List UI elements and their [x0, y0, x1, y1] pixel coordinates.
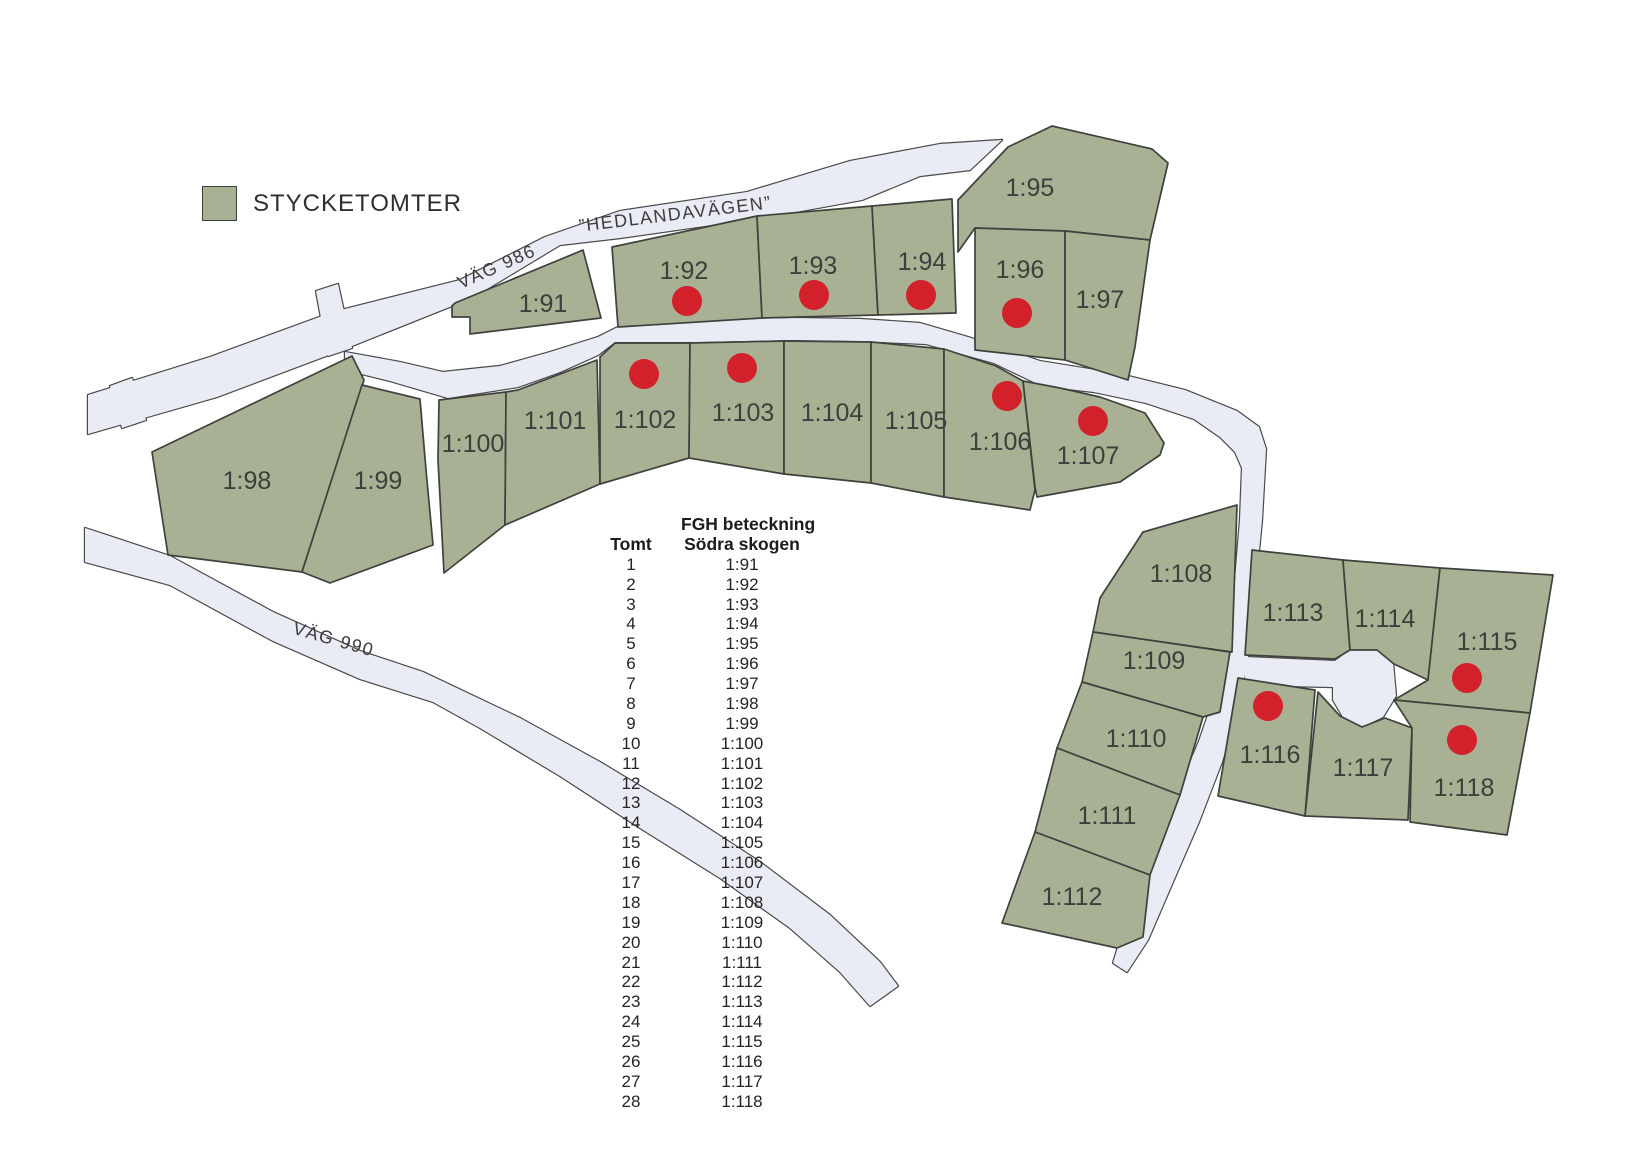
table-cell-tomt: 23	[581, 992, 681, 1012]
plot-label-1-97: 1:97	[1076, 286, 1125, 314]
table-cell-beteckning: 1:96	[681, 654, 803, 674]
table-subtitle: Södra skogen	[681, 535, 803, 555]
table-row: 71:97	[581, 674, 811, 694]
plot-label-1-118: 1:118	[1434, 774, 1495, 802]
table-cell-beteckning: 1:118	[681, 1092, 803, 1112]
table-cell-beteckning: 1:107	[681, 873, 803, 893]
legend-plot-swatch	[202, 186, 237, 221]
table-row: 191:109	[581, 913, 811, 933]
table-header-row: Tomt Södra skogen	[581, 535, 811, 555]
table-cell-beteckning: 1:110	[681, 933, 803, 953]
table-cell-tomt: 21	[581, 953, 681, 973]
legend: STYCKETOMTER	[202, 186, 462, 221]
table-cell-tomt: 22	[581, 972, 681, 992]
table-row: 211:111	[581, 953, 811, 973]
sold-dot-1-94	[906, 280, 936, 310]
table-row: 281:118	[581, 1092, 811, 1112]
table-row: 31:93	[581, 595, 811, 615]
table-cell-beteckning: 1:117	[681, 1072, 803, 1092]
table-cell-tomt: 28	[581, 1092, 681, 1112]
plot-label-1-108: 1:108	[1150, 560, 1213, 588]
table-cell-beteckning: 1:116	[681, 1052, 803, 1072]
legend-label: STYCKETOMTER	[253, 190, 462, 218]
table-cell-beteckning: 1:104	[681, 813, 803, 833]
table-row: 121:102	[581, 774, 811, 794]
plot-area-1-118	[1394, 700, 1530, 835]
table-cell-tomt: 17	[581, 873, 681, 893]
plot-label-1-109: 1:109	[1123, 647, 1186, 675]
plot-label-1-107: 1:107	[1057, 442, 1120, 470]
table-cell-beteckning: 1:99	[681, 714, 803, 734]
table-cell-beteckning: 1:100	[681, 734, 803, 754]
plot-label-1-105: 1:105	[885, 407, 948, 435]
table-row: 201:110	[581, 933, 811, 953]
table-row: 131:103	[581, 793, 811, 813]
table-cell-beteckning: 1:91	[681, 555, 803, 575]
table-cell-beteckning: 1:93	[681, 595, 803, 615]
plot-label-1-98: 1:98	[223, 467, 272, 495]
table-cell-beteckning: 1:114	[681, 1012, 803, 1032]
table-cell-tomt: 9	[581, 714, 681, 734]
table-row: 11:91	[581, 555, 811, 575]
table-row: 151:105	[581, 833, 811, 853]
table-row: 41:94	[581, 614, 811, 634]
table-row: 171:107	[581, 873, 811, 893]
table-cell-beteckning: 1:101	[681, 754, 803, 774]
sold-dot-1-116	[1253, 691, 1283, 721]
table-cell-tomt: 15	[581, 833, 681, 853]
table-cell-beteckning: 1:102	[681, 774, 803, 794]
table-row: 261:116	[581, 1052, 811, 1072]
sold-dot-1-96	[1002, 298, 1032, 328]
plot-label-1-103: 1:103	[712, 399, 775, 427]
sold-dot-1-115	[1452, 663, 1482, 693]
table-cell-beteckning: 1:97	[681, 674, 803, 694]
plot-area-1-96	[975, 228, 1065, 360]
table-row: 81:98	[581, 694, 811, 714]
table-cell-tomt: 1	[581, 555, 681, 575]
table-cell-tomt: 13	[581, 793, 681, 813]
table-cell-beteckning: 1:111	[681, 953, 803, 973]
plot-label-1-116: 1:116	[1240, 741, 1301, 769]
plot-label-1-114: 1:114	[1355, 605, 1416, 633]
table-cell-tomt: 7	[581, 674, 681, 694]
table-row: 61:96	[581, 654, 811, 674]
table-cell-tomt: 12	[581, 774, 681, 794]
table-cell-beteckning: 1:109	[681, 913, 803, 933]
table-row: 231:113	[581, 992, 811, 1012]
table-cell-tomt: 25	[581, 1032, 681, 1052]
plot-label-1-106: 1:106	[969, 428, 1032, 456]
table-row: 161:106	[581, 853, 811, 873]
table-cell-tomt: 10	[581, 734, 681, 754]
plot-label-1-100: 1:100	[442, 430, 505, 458]
plot-label-1-95: 1:95	[1006, 174, 1055, 202]
plot-lookup-table: FGH beteckning Tomt Södra skogen 11:9121…	[581, 515, 811, 1112]
plot-map-page: 1:911:921:931:941:951:961:971:981:991:10…	[0, 0, 1650, 1167]
plot-label-1-112: 1:112	[1042, 883, 1103, 911]
plot-label-1-102: 1:102	[614, 406, 677, 434]
table-cell-tomt: 6	[581, 654, 681, 674]
table-cell-beteckning: 1:105	[681, 833, 803, 853]
table-cell-beteckning: 1:103	[681, 793, 803, 813]
plot-label-1-111: 1:111	[1078, 802, 1137, 830]
table-cell-beteckning: 1:106	[681, 853, 803, 873]
table-row: 271:117	[581, 1072, 811, 1092]
table-cell-beteckning: 1:113	[681, 992, 803, 1012]
table-title-row: FGH beteckning	[581, 515, 811, 535]
plot-label-1-117: 1:117	[1333, 754, 1394, 782]
table-cell-tomt: 26	[581, 1052, 681, 1072]
table-cell-beteckning: 1:115	[681, 1032, 803, 1052]
plot-label-1-110: 1:110	[1106, 725, 1167, 753]
table-cell-tomt: 20	[581, 933, 681, 953]
table-cell-tomt: 4	[581, 614, 681, 634]
table-cell-beteckning: 1:94	[681, 614, 803, 634]
plot-label-1-113: 1:113	[1263, 599, 1324, 627]
sold-dot-1-93	[799, 280, 829, 310]
plot-label-1-91: 1:91	[519, 290, 568, 318]
table-cell-beteckning: 1:98	[681, 694, 803, 714]
sold-dot-1-118	[1447, 725, 1477, 755]
plot-label-1-104: 1:104	[801, 399, 864, 427]
plots-layer	[152, 126, 1553, 948]
table-cell-beteckning: 1:112	[681, 972, 803, 992]
sold-dot-1-107	[1078, 406, 1108, 436]
plot-map: 1:911:921:931:941:951:961:971:981:991:10…	[0, 0, 1650, 1167]
table-cell-tomt: 18	[581, 893, 681, 913]
table-cell-tomt: 11	[581, 754, 681, 774]
table-cell-tomt: 24	[581, 1012, 681, 1032]
table-col-tomt: Tomt	[581, 535, 681, 555]
table-cell-tomt: 16	[581, 853, 681, 873]
plot-area-1-100	[438, 392, 506, 573]
plot-label-1-94: 1:94	[898, 248, 947, 276]
table-row: 91:99	[581, 714, 811, 734]
table-row: 181:108	[581, 893, 811, 913]
table-cell-tomt: 2	[581, 575, 681, 595]
table-cell-tomt: 3	[581, 595, 681, 615]
table-cell-tomt: 19	[581, 913, 681, 933]
table-cell-beteckning: 1:95	[681, 634, 803, 654]
sold-dot-1-103	[727, 353, 757, 383]
table-row: 251:115	[581, 1032, 811, 1052]
plot-table-rows: 11:9121:9231:9341:9451:9561:9671:9781:98…	[581, 555, 811, 1112]
table-cell-tomt: 8	[581, 694, 681, 714]
table-title: FGH beteckning	[681, 515, 803, 535]
table-cell-beteckning: 1:108	[681, 893, 803, 913]
sold-dot-1-102	[629, 359, 659, 389]
table-row: 21:92	[581, 575, 811, 595]
table-row: 101:100	[581, 734, 811, 754]
table-row: 241:114	[581, 1012, 811, 1032]
table-cell-tomt: 14	[581, 813, 681, 833]
table-cell-beteckning: 1:92	[681, 575, 803, 595]
table-row: 221:112	[581, 972, 811, 992]
sold-dot-1-92	[672, 286, 702, 316]
table-row: 51:95	[581, 634, 811, 654]
plot-label-1-101: 1:101	[524, 407, 587, 435]
table-row: 141:104	[581, 813, 811, 833]
table-row: 111:101	[581, 754, 811, 774]
plot-label-1-93: 1:93	[789, 252, 838, 280]
table-cell-tomt: 5	[581, 634, 681, 654]
plot-label-1-115: 1:115	[1457, 628, 1518, 656]
table-cell-tomt: 27	[581, 1072, 681, 1092]
plot-label-1-99: 1:99	[354, 467, 403, 495]
sold-dot-1-106	[992, 381, 1022, 411]
plot-label-1-92: 1:92	[660, 257, 709, 285]
plot-label-1-96: 1:96	[996, 256, 1045, 284]
